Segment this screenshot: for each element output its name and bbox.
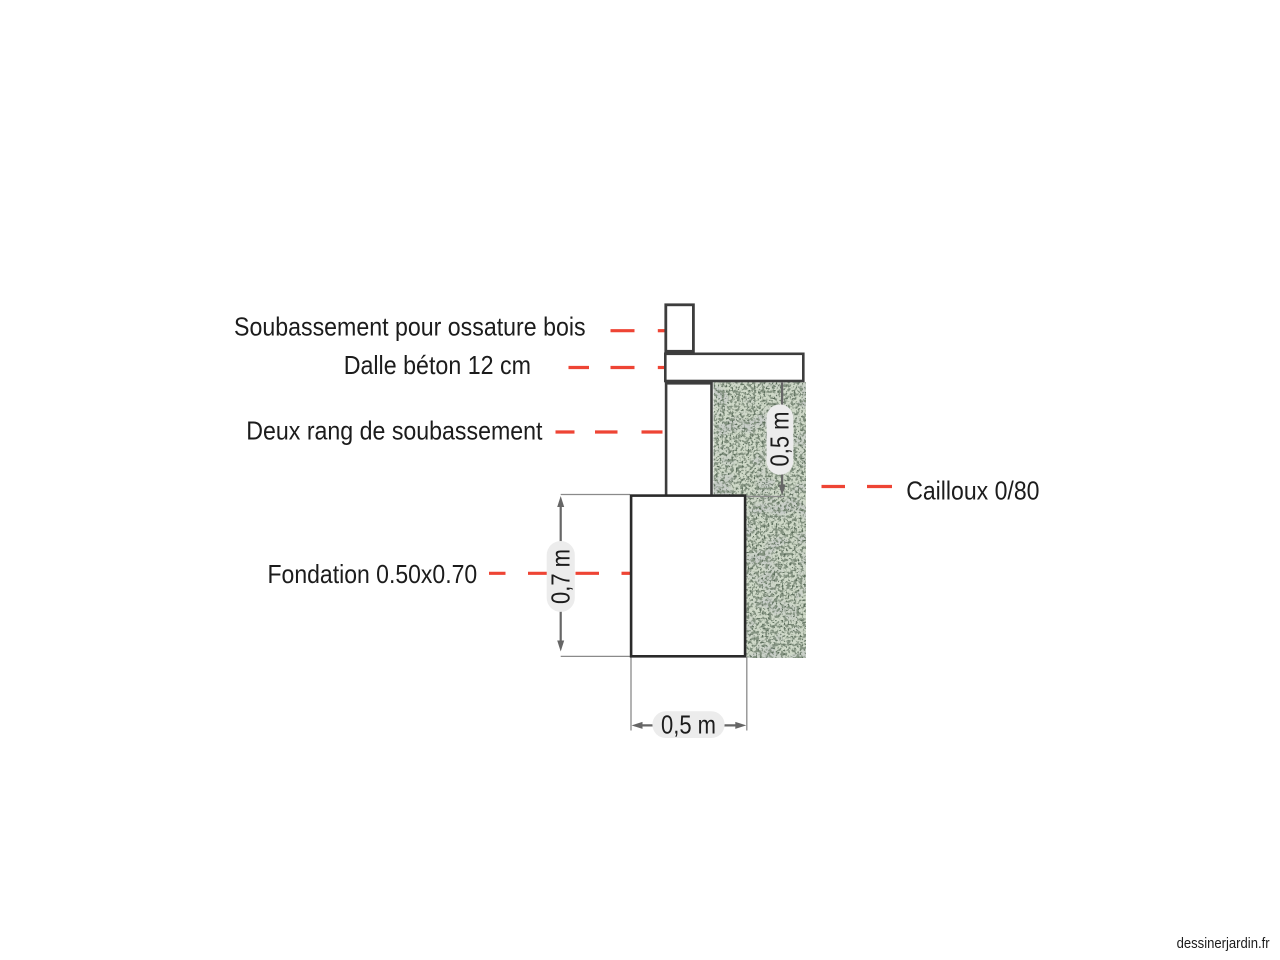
svg-text:Soubassement pour ossature boi: Soubassement pour ossature bois xyxy=(234,312,586,342)
svg-text:Cailloux 0/80: Cailloux 0/80 xyxy=(906,475,1039,505)
svg-text:0,5 m: 0,5 m xyxy=(765,412,795,467)
svg-text:0,7 m: 0,7 m xyxy=(546,549,576,604)
svg-text:0,5 m: 0,5 m xyxy=(661,710,716,740)
svg-text:dessinerjardin.fr: dessinerjardin.fr xyxy=(1177,935,1270,952)
svg-text:Deux rang de soubassement: Deux rang de soubassement xyxy=(246,416,543,446)
svg-text:Dalle béton 12 cm: Dalle béton 12 cm xyxy=(344,350,531,380)
svg-text:Fondation 0.50x0.70: Fondation 0.50x0.70 xyxy=(268,559,478,589)
